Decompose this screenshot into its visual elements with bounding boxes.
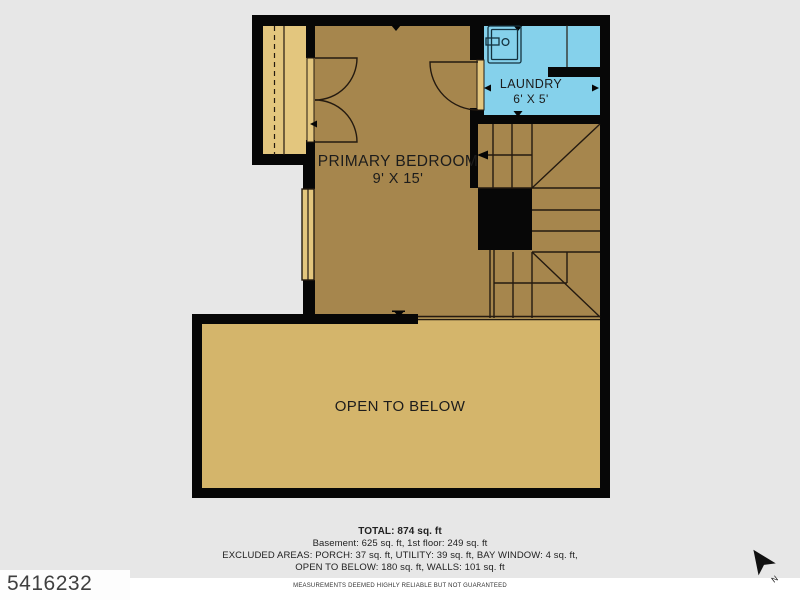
wall-bedroom-bottom — [192, 314, 418, 324]
laundry-dims: 6' X 5' — [500, 92, 562, 107]
wall-bedroom-left-upper — [303, 155, 315, 189]
disclaimer: MEASUREMENTS DEEMED HIGHLY RELIABLE BUT … — [0, 580, 800, 592]
open-below-name: OPEN TO BELOW — [335, 398, 466, 416]
tick-open-wall-bar — [392, 311, 405, 313]
wall-open-left — [192, 314, 202, 498]
closet-door-leaf — [307, 58, 314, 142]
wall-top — [252, 15, 610, 26]
bedroom-window — [302, 189, 314, 280]
bedroom-name: PRIMARY BEDROOM — [318, 153, 478, 171]
floor-plan-page: N PRIMARY BEDROOM 9' X 15' LAUNDRY 6' X … — [0, 0, 800, 600]
total-area: TOTAL: 874 sq. ft — [0, 526, 800, 538]
wall-stair-core — [478, 188, 532, 250]
wall-closet-left — [252, 15, 263, 165]
floor-plan-svg: N — [0, 0, 800, 600]
open-below-label: OPEN TO BELOW — [335, 398, 466, 416]
laundry-door-leaf — [477, 60, 484, 110]
excluded-areas-1: EXCLUDED AREAS: PORCH: 37 sq. ft, UTILIT… — [0, 550, 800, 562]
wall-laundry-stub — [548, 67, 600, 77]
wall-closet-divider-upper — [306, 26, 315, 58]
bedroom-dims: 9' X 15' — [318, 171, 478, 188]
wall-laundry-left-upper — [470, 15, 484, 60]
area-summary: TOTAL: 874 sq. ft Basement: 625 sq. ft, … — [0, 526, 800, 592]
laundry-name: LAUNDRY — [500, 77, 562, 92]
wall-laundry-bottom — [470, 115, 600, 124]
floor-areas: Basement: 625 sq. ft, 1st floor: 249 sq.… — [0, 538, 800, 550]
listing-id: 5416232 — [7, 572, 92, 596]
wall-open-bottom — [192, 488, 610, 498]
wall-right — [600, 15, 610, 498]
excluded-areas-2: OPEN TO BELOW: 180 sq. ft, WALLS: 101 sq… — [0, 562, 800, 574]
closet-floor — [263, 26, 307, 155]
laundry-label: LAUNDRY 6' X 5' — [500, 77, 562, 107]
bedroom-label: PRIMARY BEDROOM 9' X 15' — [318, 153, 478, 188]
